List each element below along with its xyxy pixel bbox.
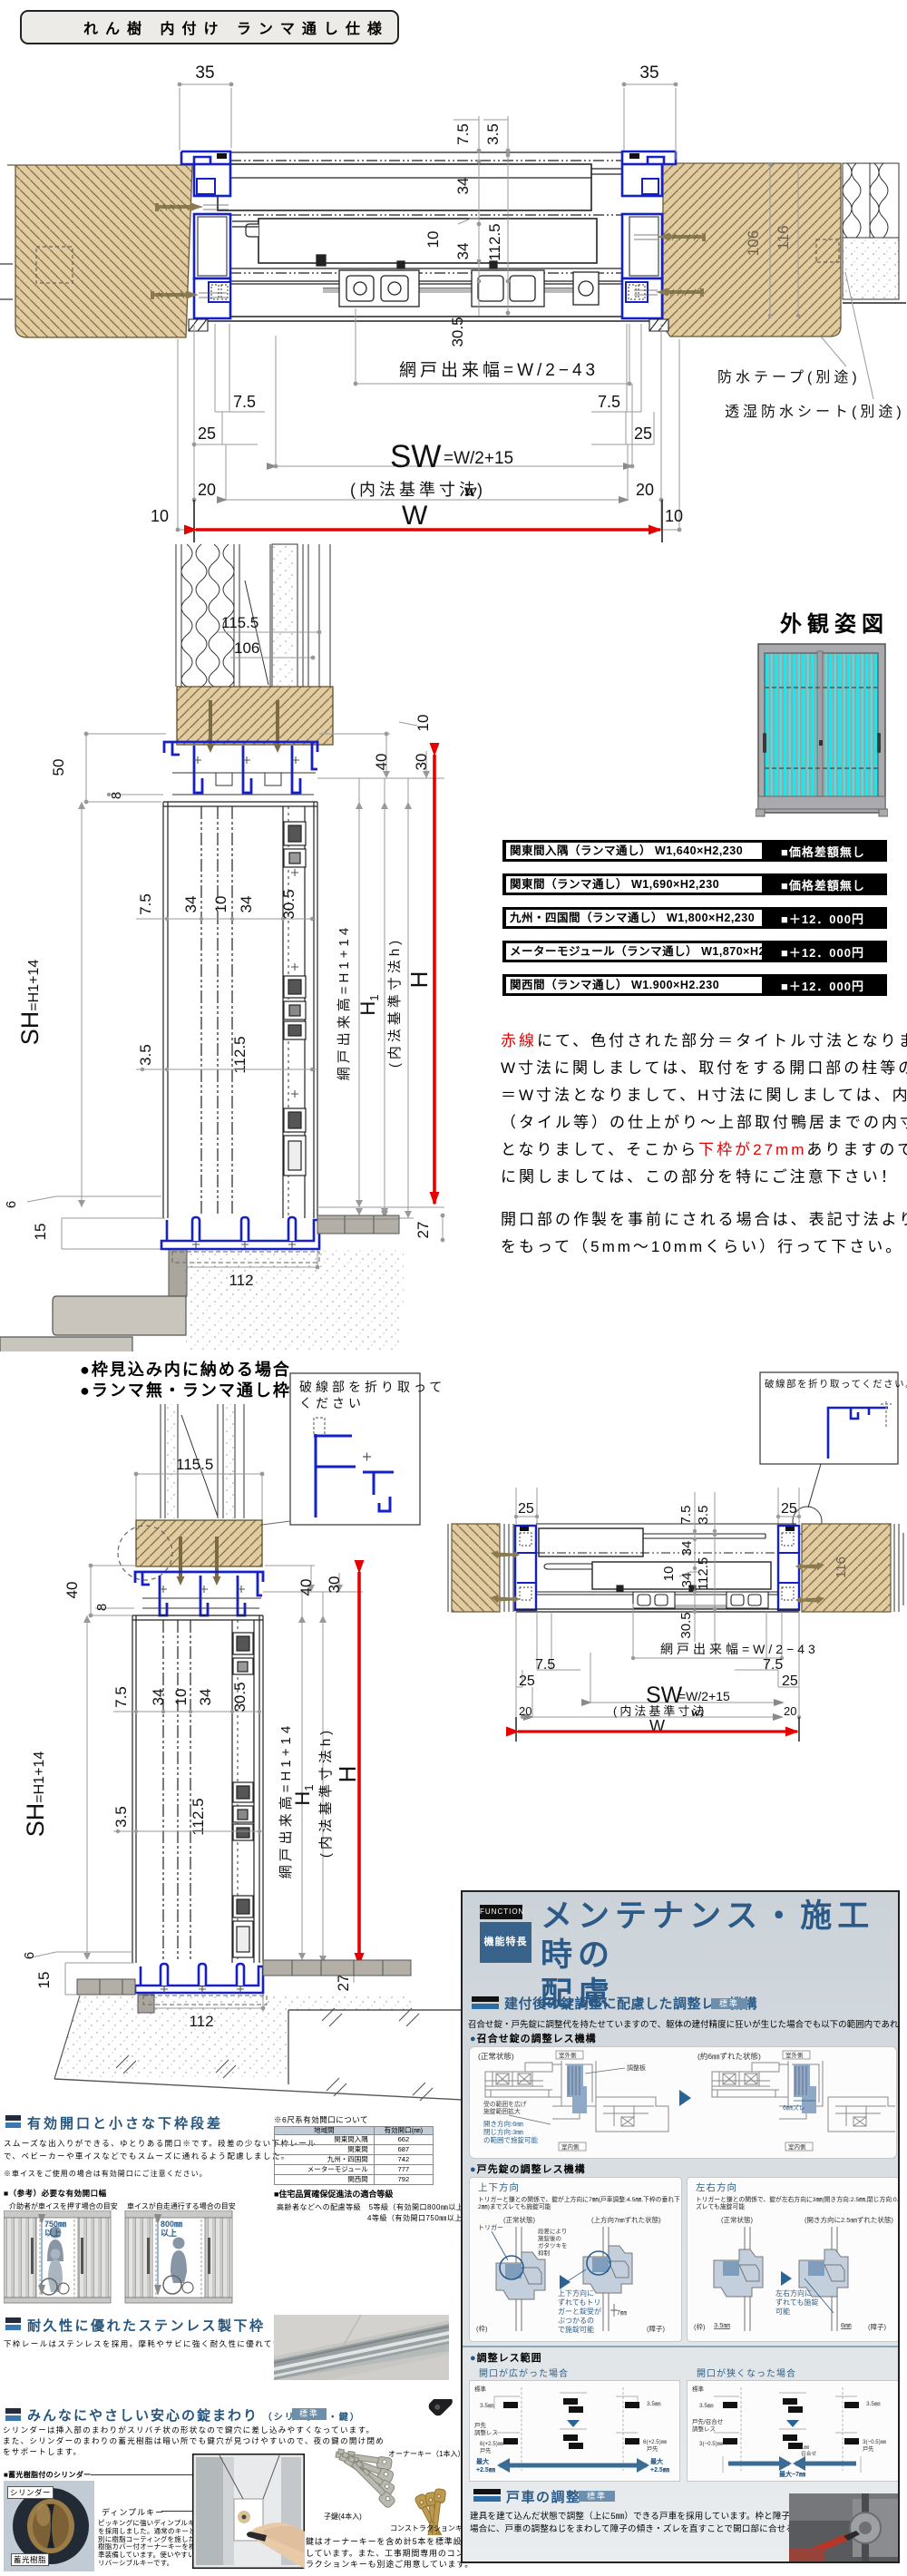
svg-text:左右方向: 左右方向 xyxy=(696,2181,737,2193)
svg-text:調整レス: 調整レス xyxy=(692,2425,716,2433)
svg-text:受の範囲を広げ: 受の範囲を広げ xyxy=(483,2100,527,2108)
svg-text:6: 6 xyxy=(22,1952,37,1959)
svg-text:25: 25 xyxy=(634,424,652,443)
svg-text:戸先/召合せ: 戸先/召合せ xyxy=(692,2417,723,2425)
svg-text:H1: H1 xyxy=(291,1784,316,1805)
svg-text:3.5: 3.5 xyxy=(484,123,502,145)
svg-text:25: 25 xyxy=(519,1673,535,1689)
svg-text:ずれてもトリ: ずれてもトリ xyxy=(558,2298,600,2307)
svg-text:トリガー: トリガー xyxy=(478,2223,503,2231)
svg-text:3.5㎜: 3.5㎜ xyxy=(480,2403,494,2409)
svg-text:112.5: 112.5 xyxy=(696,1557,711,1590)
svg-text:40: 40 xyxy=(297,1579,315,1596)
svg-text:112.5: 112.5 xyxy=(486,223,503,260)
svg-text:ぶつかるの: ぶつかるの xyxy=(558,2317,594,2325)
svg-text:2㎜)までズレても施錠可能: 2㎜)までズレても施錠可能 xyxy=(478,2202,551,2210)
svg-text:H1: H1 xyxy=(356,994,381,1015)
svg-text:上下方向: 上下方向 xyxy=(478,2181,520,2193)
svg-text:(枠): (枠) xyxy=(476,2324,488,2333)
svg-text:40: 40 xyxy=(63,1582,81,1599)
svg-text:H: H xyxy=(405,971,433,989)
svg-text:115.5: 115.5 xyxy=(221,614,258,631)
svg-text:3.5: 3.5 xyxy=(112,1806,130,1828)
svg-text:破線部を折り取ってください。: 破線部を折り取ってください。 xyxy=(765,1378,907,1390)
svg-text:(正常状態): (正常状態) xyxy=(478,2052,514,2061)
svg-text:SW: SW xyxy=(390,439,441,474)
svg-text:ガーと錠受が: ガーと錠受が xyxy=(558,2307,601,2316)
svg-text:以上: 以上 xyxy=(44,2228,61,2238)
svg-text:): ) xyxy=(477,481,483,499)
svg-text:最大: 最大 xyxy=(476,2457,489,2465)
svg-text:網戸出来幅=W/2−43: 網戸出来幅=W/2−43 xyxy=(399,360,599,380)
svg-text:左右方向に: 左右方向に xyxy=(775,2288,812,2298)
svg-text:25: 25 xyxy=(518,1501,534,1517)
svg-text:(内法基準寸法h): (内法基準寸法h) xyxy=(387,937,403,1068)
svg-text:透湿防水シート(別途): 透湿防水シート(別途) xyxy=(725,404,905,420)
svg-text:室外側: 室外側 xyxy=(785,2051,804,2059)
svg-text:10: 10 xyxy=(212,896,229,913)
svg-text:=W/2+15: =W/2+15 xyxy=(678,1689,730,1703)
svg-text:の範囲で施錠可能: の範囲で施錠可能 xyxy=(483,2135,538,2144)
svg-text:戸先: 戸先 xyxy=(480,2447,491,2454)
svg-text:116: 116 xyxy=(775,225,792,249)
svg-text:34: 34 xyxy=(238,896,255,913)
svg-text:25: 25 xyxy=(782,1673,798,1689)
svg-text:3.5: 3.5 xyxy=(137,1044,154,1066)
svg-text:35: 35 xyxy=(195,63,214,83)
svg-text:30.5: 30.5 xyxy=(280,889,297,919)
svg-text:トリガーと鎌との関係で、錠が上方向に7㎜(戸車調整:4.5㎜: トリガーと鎌との関係で、錠が上方向に7㎜(戸車調整:4.5㎜,下枠の垂れ下がり: xyxy=(478,2195,680,2203)
svg-text:ズレても施錠可能: ズレても施錠可能 xyxy=(696,2202,745,2210)
svg-text:50: 50 xyxy=(50,759,67,776)
svg-text:で施錠可能: で施錠可能 xyxy=(558,2325,594,2334)
svg-text:調整板: 調整板 xyxy=(627,2064,646,2072)
svg-text:SH=H1+14: SH=H1+14 xyxy=(16,960,44,1046)
svg-text:30: 30 xyxy=(326,1576,343,1594)
svg-text:20: 20 xyxy=(784,1704,796,1718)
svg-text:20: 20 xyxy=(636,481,654,499)
svg-text:7㎜: 7㎜ xyxy=(617,2310,627,2317)
svg-text:106: 106 xyxy=(745,230,762,256)
svg-text:6㎜ズレ: 6㎜ズレ xyxy=(783,2103,805,2112)
svg-text:ください: ください xyxy=(299,1396,365,1410)
svg-text:施錠後の: 施錠後の xyxy=(538,2234,561,2242)
svg-text:最大: 最大 xyxy=(650,2457,663,2465)
svg-text:(正常状態): (正常状態) xyxy=(721,2215,753,2224)
svg-text:10: 10 xyxy=(665,507,683,525)
svg-text:(約6㎜ずれた状態): (約6㎜ずれた状態) xyxy=(697,2052,761,2061)
svg-text:SH=H1+14: SH=H1+14 xyxy=(22,1751,49,1838)
svg-text:7.5: 7.5 xyxy=(112,1686,130,1708)
svg-text:30.5: 30.5 xyxy=(449,317,466,346)
svg-text:開き方向:6㎜: 開き方向:6㎜ xyxy=(483,2119,523,2128)
svg-text:7.5: 7.5 xyxy=(678,1506,694,1525)
svg-text:w: w xyxy=(464,481,477,501)
svg-text:以上: 以上 xyxy=(161,2228,177,2238)
svg-text:(障子): (障子) xyxy=(868,2322,886,2331)
svg-text:閉じ方向:3㎜: 閉じ方向:3㎜ xyxy=(483,2127,523,2136)
svg-text:3.5: 3.5 xyxy=(696,1506,711,1525)
svg-text:10: 10 xyxy=(172,1689,190,1706)
svg-text:7.5: 7.5 xyxy=(137,893,154,915)
svg-text:室外側: 室外側 xyxy=(559,2051,577,2059)
svg-text:34: 34 xyxy=(454,243,472,260)
svg-text:7.5: 7.5 xyxy=(535,1657,555,1673)
svg-text:7.5: 7.5 xyxy=(454,123,472,145)
svg-text:(内法基準寸法h): (内法基準寸法h) xyxy=(318,1727,334,1858)
svg-text:34: 34 xyxy=(679,1573,695,1588)
svg-text:3.5㎜: 3.5㎜ xyxy=(714,2321,730,2329)
svg-text:戸先: 戸先 xyxy=(863,2445,873,2453)
svg-text:27: 27 xyxy=(414,1222,432,1239)
svg-text:6㎜: 6㎜ xyxy=(841,2321,852,2329)
svg-text:標準: 標準 xyxy=(692,2385,705,2393)
svg-text:(枠): (枠) xyxy=(694,2322,706,2331)
svg-text:20: 20 xyxy=(198,481,216,499)
svg-text:3.5㎜: 3.5㎜ xyxy=(647,2401,661,2407)
svg-text:8: 8 xyxy=(109,792,124,799)
svg-text:(障子): (障子) xyxy=(647,2324,665,2333)
svg-text:上下方向に: 上下方向に xyxy=(558,2288,594,2298)
svg-text:戸先: 戸先 xyxy=(474,2421,487,2429)
svg-text:(内法基準寸法: (内法基準寸法 xyxy=(350,481,479,499)
svg-text:6(+2.5)㎜: 6(+2.5)㎜ xyxy=(643,2439,667,2445)
svg-text:15: 15 xyxy=(32,1224,49,1241)
svg-text:3(−0.5)㎜: 3(−0.5)㎜ xyxy=(699,2441,723,2447)
svg-text:段差により: 段差により xyxy=(538,2227,567,2235)
svg-text:800㎜: 800㎜ xyxy=(161,2220,182,2229)
svg-text:網戸出来幅=W/2−43: 網戸出来幅=W/2−43 xyxy=(660,1642,819,1656)
svg-text:防水テープ(別途): 防水テープ(別途) xyxy=(717,369,861,385)
svg-text:w: w xyxy=(691,1706,700,1720)
svg-text:112.5: 112.5 xyxy=(190,1798,207,1835)
svg-text:室内側: 室内側 xyxy=(788,2142,806,2151)
svg-text:10: 10 xyxy=(151,507,169,525)
svg-text:30: 30 xyxy=(413,754,430,771)
svg-text:7.5: 7.5 xyxy=(598,393,620,411)
svg-text:25: 25 xyxy=(781,1501,797,1517)
svg-text:34: 34 xyxy=(182,896,200,913)
svg-text:106: 106 xyxy=(234,639,259,657)
svg-text:115.5: 115.5 xyxy=(176,1456,213,1473)
svg-text:召合せ: 召合せ xyxy=(801,2450,817,2457)
svg-text:6(+2.5)㎜: 6(+2.5)㎜ xyxy=(480,2441,503,2447)
svg-text:戸先: 戸先 xyxy=(647,2445,658,2453)
svg-text:1㎜: 1㎜ xyxy=(801,2445,809,2451)
svg-text:トリガーと鎌との関係で、錠が左右方向に3㎜(開き方向:2.5: トリガーと鎌との関係で、錠が左右方向に3㎜(開き方向:2.5㎜,閉じ方向:0.5… xyxy=(696,2195,898,2203)
svg-text:35: 35 xyxy=(639,63,658,83)
svg-text:室内側: 室内側 xyxy=(561,2142,580,2151)
svg-text:H: H xyxy=(334,1766,361,1783)
svg-text:15: 15 xyxy=(35,1972,53,1989)
svg-text:ずれても施錠: ずれても施錠 xyxy=(775,2298,818,2307)
svg-text:3.5㎜: 3.5㎜ xyxy=(866,2401,881,2407)
svg-text:+2.5㎜: +2.5㎜ xyxy=(650,2467,669,2474)
svg-text:20: 20 xyxy=(519,1704,532,1718)
svg-text:7.5: 7.5 xyxy=(763,1657,783,1673)
svg-text:34: 34 xyxy=(454,178,472,195)
svg-text:10: 10 xyxy=(661,1566,677,1582)
svg-text:3(−0.5)㎜: 3(−0.5)㎜ xyxy=(863,2439,886,2445)
svg-text:30.5: 30.5 xyxy=(678,1612,694,1638)
svg-text:25: 25 xyxy=(198,424,216,443)
svg-text:750㎜: 750㎜ xyxy=(44,2220,66,2229)
svg-text:8: 8 xyxy=(94,1604,110,1611)
svg-text:10: 10 xyxy=(414,715,432,732)
svg-text:(正常状態): (正常状態) xyxy=(503,2215,535,2224)
svg-text:30.5: 30.5 xyxy=(231,1682,249,1712)
svg-text:7.5: 7.5 xyxy=(233,393,256,411)
svg-text:(上方向7㎜ずれた状態): (上方向7㎜ずれた状態) xyxy=(591,2215,661,2224)
svg-text:W: W xyxy=(402,501,428,531)
svg-text:10: 10 xyxy=(424,231,442,249)
svg-text:34: 34 xyxy=(679,1541,695,1556)
svg-text:34: 34 xyxy=(197,1689,214,1706)
svg-text:調整レス: 調整レス xyxy=(474,2428,498,2436)
svg-text:3.5㎜: 3.5㎜ xyxy=(699,2403,714,2409)
svg-text:ガタツキを: ガタツキを xyxy=(538,2241,568,2249)
svg-text:(開き方向に2.5㎜ずれた状態): (開き方向に2.5㎜ずれた状態) xyxy=(805,2215,893,2224)
svg-text:40: 40 xyxy=(373,754,390,771)
svg-text:27: 27 xyxy=(335,1975,352,1992)
svg-text:=W/2+15: =W/2+15 xyxy=(444,449,513,468)
svg-text:34: 34 xyxy=(150,1689,167,1706)
svg-text:破線部を折り取って: 破線部を折り取って xyxy=(299,1380,445,1394)
svg-text:): ) xyxy=(700,1704,704,1718)
svg-text:6: 6 xyxy=(4,1201,19,1208)
svg-text:112.5: 112.5 xyxy=(231,1036,249,1073)
svg-text:可能: 可能 xyxy=(775,2307,790,2316)
svg-text:抑制: 抑制 xyxy=(538,2249,551,2257)
svg-text:+2.5㎜: +2.5㎜ xyxy=(476,2467,495,2474)
svg-text:最大−7㎜: 最大−7㎜ xyxy=(779,2470,805,2478)
svg-text:施錠範囲拡大: 施錠範囲拡大 xyxy=(483,2107,521,2115)
svg-text:116: 116 xyxy=(834,1556,849,1578)
svg-text:網戸出来高=H1+14: 網戸出来高=H1+14 xyxy=(336,924,352,1080)
svg-text:標準: 標準 xyxy=(474,2385,487,2393)
